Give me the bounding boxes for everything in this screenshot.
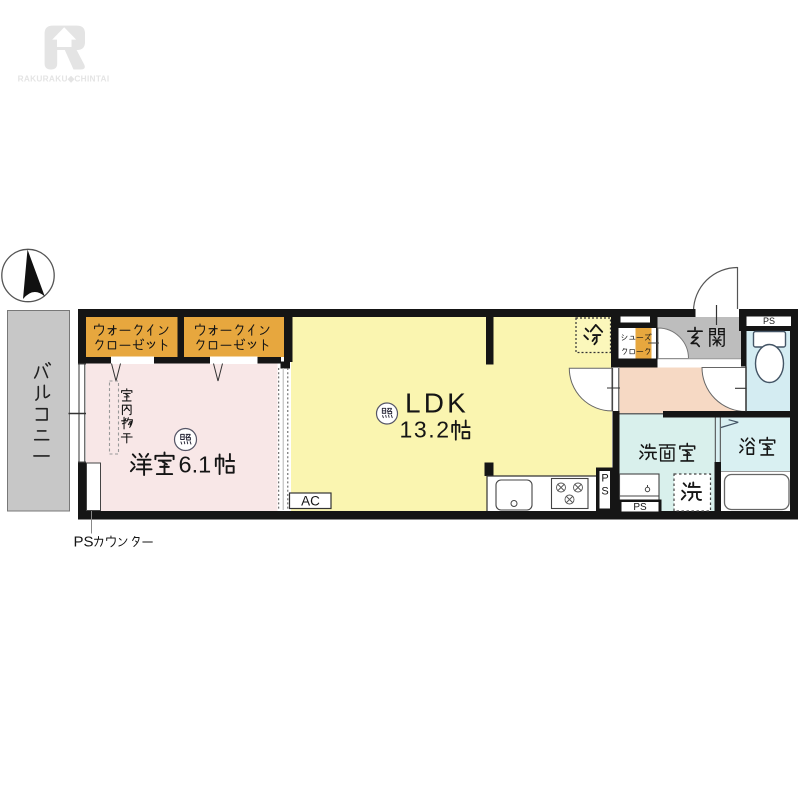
svg-text:AC: AC <box>301 494 320 509</box>
svg-text:RAKURAKU◆CHINTAI: RAKURAKU◆CHINTAI <box>18 74 110 84</box>
svg-text:S: S <box>601 486 608 498</box>
svg-text:13.2: 13.2 <box>400 417 451 443</box>
svg-text:PS: PS <box>74 534 94 551</box>
svg-text:6.1: 6.1 <box>179 452 212 478</box>
svg-text:PS: PS <box>763 316 775 326</box>
svg-text:PS: PS <box>633 502 647 513</box>
svg-text:LDK: LDK <box>405 388 469 419</box>
svg-text:P: P <box>601 473 608 485</box>
